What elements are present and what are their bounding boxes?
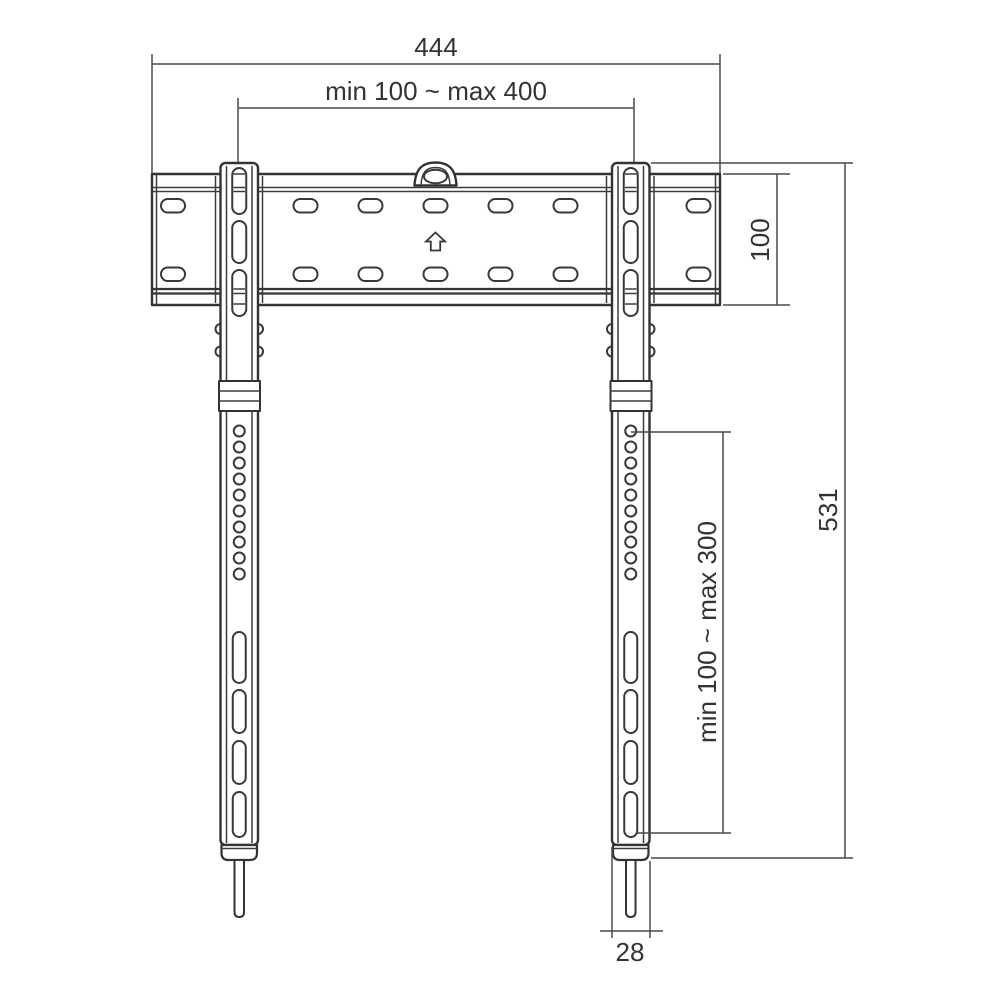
hook-hole (424, 170, 447, 184)
rail-slot (233, 792, 246, 837)
wall-mount-technical-drawing: 444 min 100 ~ max 400 100 531 min 100 ~ … (0, 0, 1000, 1000)
rail-slot (233, 690, 246, 733)
rail-slot (624, 221, 638, 263)
mounting-slot (489, 268, 513, 282)
rail-collar (219, 381, 260, 411)
rail-slot (233, 741, 246, 784)
rail-foot (613, 845, 649, 860)
rail-slot (232, 221, 246, 263)
mounting-slot (294, 268, 318, 282)
dimension-rail-width-label: 28 (616, 937, 645, 967)
dimension-overall-width-label: 444 (414, 32, 457, 62)
drawing-canvas: 444 min 100 ~ max 400 100 531 min 100 ~ … (0, 0, 1000, 1000)
mounting-slot (161, 199, 185, 213)
mounting-slot (554, 268, 578, 282)
mounting-slot (687, 268, 711, 282)
mounting-slot (554, 199, 578, 213)
dimension-plate-height: 100 (723, 174, 790, 305)
dimension-vertical-mount-range-label: min 100 ~ max 300 (692, 521, 722, 743)
rail-collar (611, 381, 652, 411)
pull-rod (626, 860, 636, 917)
pull-rod (235, 860, 245, 917)
dimension-horizontal-mount-range-label: min 100 ~ max 400 (325, 76, 547, 106)
rail-foot (222, 845, 258, 860)
right-vertical-rail (607, 163, 655, 917)
left-vertical-rail (216, 163, 264, 917)
mounting-slot (359, 199, 383, 213)
mounting-slot (424, 199, 448, 213)
mounting-slot (424, 268, 448, 282)
mounting-slot (489, 199, 513, 213)
rail-slot (233, 632, 246, 683)
rail-slot (624, 632, 637, 683)
hanging-hook (415, 163, 457, 186)
mounting-slot (294, 199, 318, 213)
rail-slot (624, 741, 637, 784)
mounting-slot (687, 199, 711, 213)
dimension-horizontal-mount-range: min 100 ~ max 400 (238, 76, 634, 162)
rail-slot (624, 792, 637, 837)
rail-slot (624, 690, 637, 733)
mounting-slot (161, 268, 185, 282)
dimension-overall-height-label: 531 (813, 488, 843, 531)
dimension-plate-height-label: 100 (745, 218, 775, 261)
mounting-slot (359, 268, 383, 282)
